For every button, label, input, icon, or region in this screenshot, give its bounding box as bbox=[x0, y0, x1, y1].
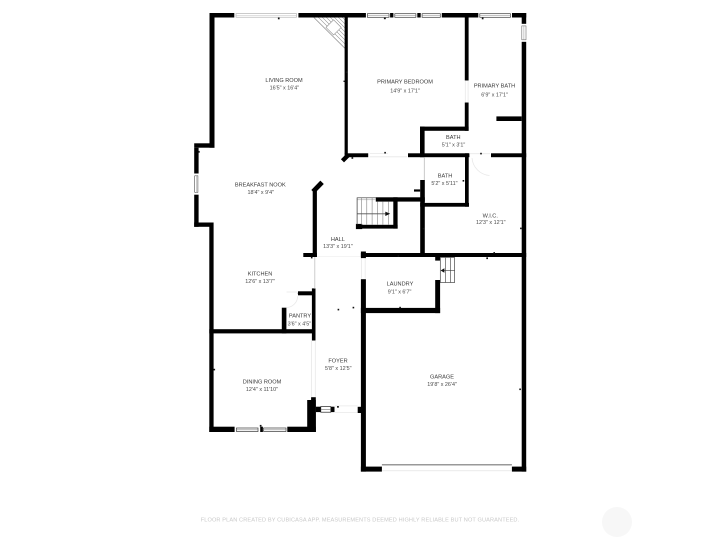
svg-text:6'9" x 17'1": 6'9" x 17'1" bbox=[481, 93, 508, 99]
svg-text:16'5" x 16'4": 16'5" x 16'4" bbox=[270, 86, 300, 92]
svg-text:PANTRY: PANTRY bbox=[289, 314, 311, 320]
svg-text:5'8" x 12'5": 5'8" x 12'5" bbox=[325, 366, 352, 372]
svg-text:LAUNDRY: LAUNDRY bbox=[387, 281, 414, 287]
svg-text:PRIMARY BATH: PRIMARY BATH bbox=[474, 83, 515, 89]
svg-text:KITCHEN: KITCHEN bbox=[248, 272, 273, 278]
svg-text:3'6" x 4'5": 3'6" x 4'5" bbox=[288, 321, 312, 327]
svg-text:5'2" x 5'11": 5'2" x 5'11" bbox=[431, 181, 457, 187]
svg-text:5'1" x 3'1": 5'1" x 3'1" bbox=[442, 143, 466, 149]
svg-text:12'3" x 12'1": 12'3" x 12'1" bbox=[476, 220, 506, 226]
svg-text:19'8" x 26'4": 19'8" x 26'4" bbox=[427, 382, 457, 388]
svg-text:BATH: BATH bbox=[438, 173, 453, 179]
svg-text:DINING ROOM: DINING ROOM bbox=[243, 380, 282, 386]
svg-text:PRIMARY BEDROOM: PRIMARY BEDROOM bbox=[377, 80, 433, 86]
svg-text:12'6" x 13'7": 12'6" x 13'7" bbox=[245, 279, 275, 285]
svg-text:13'3" x 19'1": 13'3" x 19'1" bbox=[323, 244, 353, 250]
svg-text:14'9" x 17'1": 14'9" x 17'1" bbox=[390, 89, 420, 95]
svg-text:9'1" x 6'7": 9'1" x 6'7" bbox=[388, 289, 412, 295]
svg-text:FLOOR PLAN CREATED BY CUBICASA: FLOOR PLAN CREATED BY CUBICASA APP. MEAS… bbox=[201, 517, 520, 523]
svg-text:HALL: HALL bbox=[331, 237, 345, 243]
svg-text:FOYER: FOYER bbox=[328, 358, 347, 364]
svg-text:LIVING ROOM: LIVING ROOM bbox=[265, 78, 303, 84]
svg-text:18'4" x 9'4": 18'4" x 9'4" bbox=[248, 190, 275, 196]
svg-text:BATH: BATH bbox=[446, 135, 461, 141]
svg-text:12'4" x 11'10": 12'4" x 11'10" bbox=[246, 387, 278, 393]
svg-text:GARAGE: GARAGE bbox=[430, 375, 454, 381]
svg-text:W.I.C.: W.I.C. bbox=[483, 213, 499, 219]
svg-text:BREAKFAST NOOK: BREAKFAST NOOK bbox=[235, 182, 286, 188]
